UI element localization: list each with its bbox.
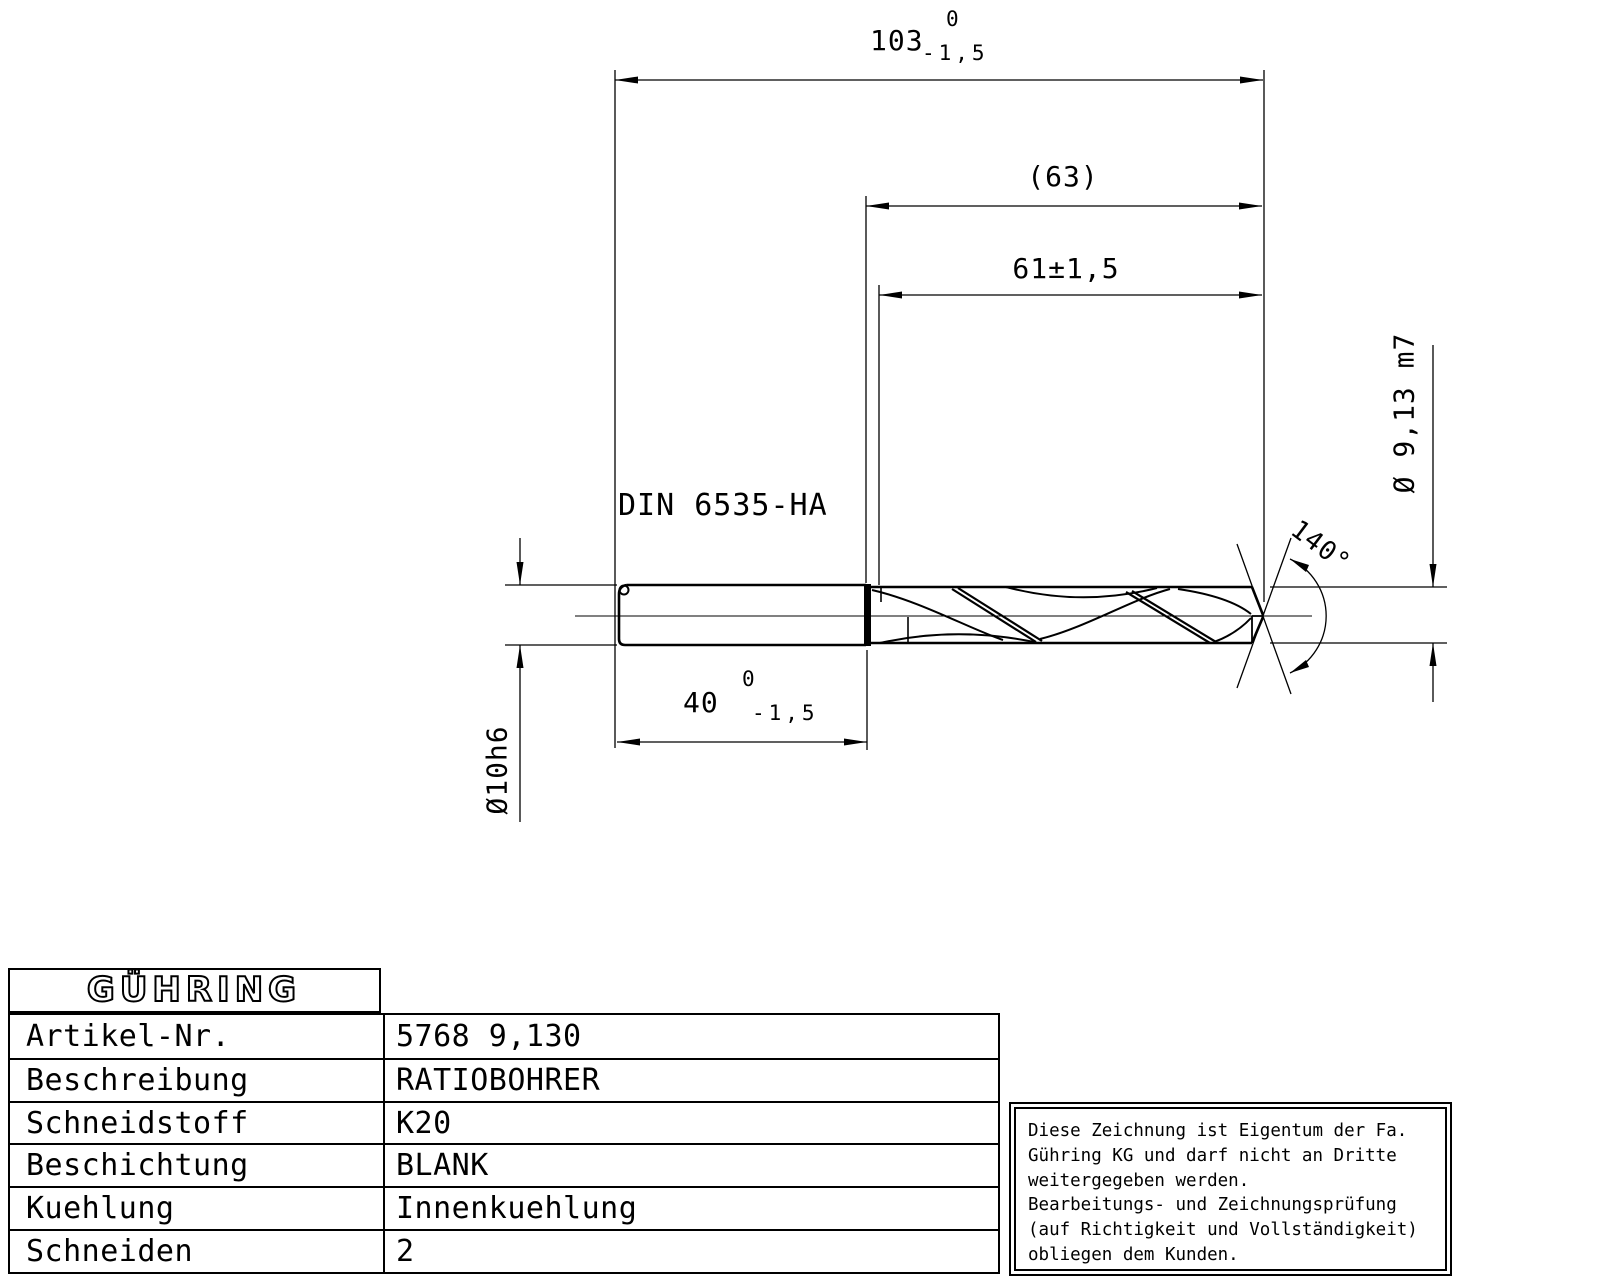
dim-shank-diameter: Ø10h6 [482,725,511,814]
table-row-label: Beschreibung [10,1058,383,1101]
dim-shank-length: 40 [683,688,719,717]
drawing-sheet: 103 0 -1,5 (63) 61±1,5 DIN 6535-HA 40 0 … [0,0,1600,1280]
table-row-label: Schneidstoff [10,1101,383,1144]
title-block-logo-cell: GÜHRING [8,968,381,1013]
table-row-value: 2 [383,1229,998,1272]
notice-line: Gühring KG und darf nicht an Dritte [1028,1144,1445,1169]
table-row-label: Beschichtung [10,1143,383,1186]
notice-line: obliegen dem Kunden. [1028,1243,1445,1268]
guehring-logo-text: GÜHRING [87,970,301,1010]
table-row-label: Kuehlung [10,1186,383,1229]
table-row-label: Schneiden [10,1229,383,1272]
ownership-notice-text: Diese Zeichnung ist Eigentum der Fa. Güh… [1014,1107,1447,1271]
guehring-logo: GÜHRING [10,970,379,1011]
table-row-value: 5768 9,130 [383,1015,998,1058]
dim-flute-length-ref: (63) [1003,162,1123,191]
dim-shank-length-tol-upper: 0 [742,668,759,690]
dim-shank-length-tol-lower: -1,5 [752,702,819,724]
dimension-lines [505,70,1447,822]
shank-flute-junction [864,584,871,646]
shank-outline [619,585,866,645]
dim-body-diameter: Ø 9,13 m7 [1389,333,1418,494]
table-row-value: BLANK [383,1143,998,1186]
notice-line: (auf Richtigkeit und Vollständigkeit) [1028,1218,1445,1243]
dim-flute-length: 61±1,5 [1006,254,1126,283]
title-block-table: Artikel-Nr. 5768 9,130 Beschreibung RATI… [8,1013,1000,1274]
dim-overall-length-tol-upper: 0 [946,8,963,30]
table-row-value: Innenkuehlung [383,1186,998,1229]
notice-line: Bearbeitungs- und Zeichnungsprüfung [1028,1193,1445,1218]
flute-helix [872,587,1251,643]
table-row-value: K20 [383,1101,998,1144]
table-row-value: RATIOBOHRER [383,1058,998,1101]
dim-overall-length: 103 [870,26,924,55]
ownership-notice-box: Diese Zeichnung ist Eigentum der Fa. Güh… [1009,1102,1452,1276]
shank-standard-label: DIN 6535-HA [618,490,828,522]
table-row-label: Artikel-Nr. [10,1015,383,1058]
notice-line: weitergegeben werden. [1028,1169,1445,1194]
dim-overall-length-tol-lower: -1,5 [922,42,989,64]
notice-line: Diese Zeichnung ist Eigentum der Fa. [1028,1119,1445,1144]
